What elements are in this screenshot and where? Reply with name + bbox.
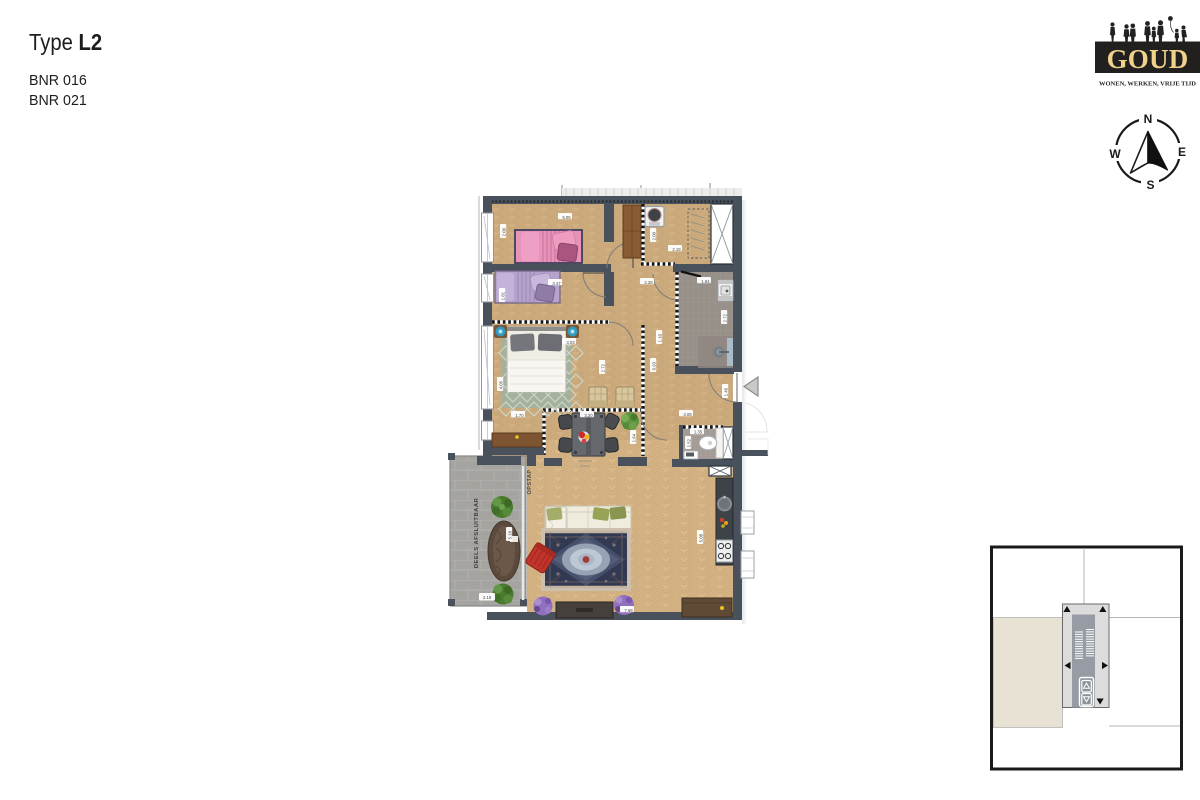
svg-text:3.20: 3.20 bbox=[584, 413, 593, 418]
svg-text:3.03: 3.03 bbox=[566, 340, 575, 345]
svg-text:WONEN, WERKEN, VRIJE TIJD: WONEN, WERKEN, VRIJE TIJD bbox=[1099, 81, 1196, 88]
svg-text:1.52: 1.52 bbox=[686, 438, 691, 447]
svg-text:1.64: 1.64 bbox=[631, 433, 636, 442]
svg-text:DEELS AFSLUITBAAR: DEELS AFSLUITBAAR bbox=[474, 497, 480, 568]
svg-text:3.08: 3.08 bbox=[683, 412, 692, 417]
svg-text:2.00: 2.00 bbox=[651, 231, 656, 240]
svg-text:E: E bbox=[1178, 145, 1186, 159]
svg-text:2.18: 2.18 bbox=[483, 595, 492, 600]
svg-text:1.70: 1.70 bbox=[515, 413, 524, 418]
svg-text:1.10: 1.10 bbox=[657, 333, 662, 342]
svg-text:1.46: 1.46 bbox=[723, 387, 728, 396]
svg-text:5.08: 5.08 bbox=[698, 533, 703, 542]
svg-text:2.72: 2.72 bbox=[722, 313, 727, 322]
svg-text:2.19: 2.19 bbox=[672, 247, 681, 252]
svg-text:OPSTAP: OPSTAP bbox=[527, 470, 533, 495]
svg-text:N: N bbox=[1144, 112, 1153, 126]
svg-text:GOUD: GOUD bbox=[1107, 44, 1189, 74]
svg-text:1.35: 1.35 bbox=[694, 430, 703, 435]
svg-text:2.72: 2.72 bbox=[600, 363, 605, 372]
svg-text:3.47: 3.47 bbox=[552, 281, 561, 286]
svg-text:S: S bbox=[1146, 178, 1154, 192]
svg-text:6.93: 6.93 bbox=[651, 361, 656, 370]
svg-text:5.18: 5.18 bbox=[507, 530, 512, 539]
svg-text:7.68: 7.68 bbox=[624, 608, 633, 613]
svg-text:2.28: 2.28 bbox=[644, 280, 653, 285]
svg-text:2.00: 2.00 bbox=[501, 227, 506, 236]
svg-text:1.81: 1.81 bbox=[500, 291, 505, 300]
svg-text:5.05: 5.05 bbox=[562, 215, 571, 220]
svg-text:4.05: 4.05 bbox=[498, 380, 503, 389]
svg-text:W: W bbox=[1109, 147, 1121, 161]
svg-text:1.84: 1.84 bbox=[701, 279, 710, 284]
